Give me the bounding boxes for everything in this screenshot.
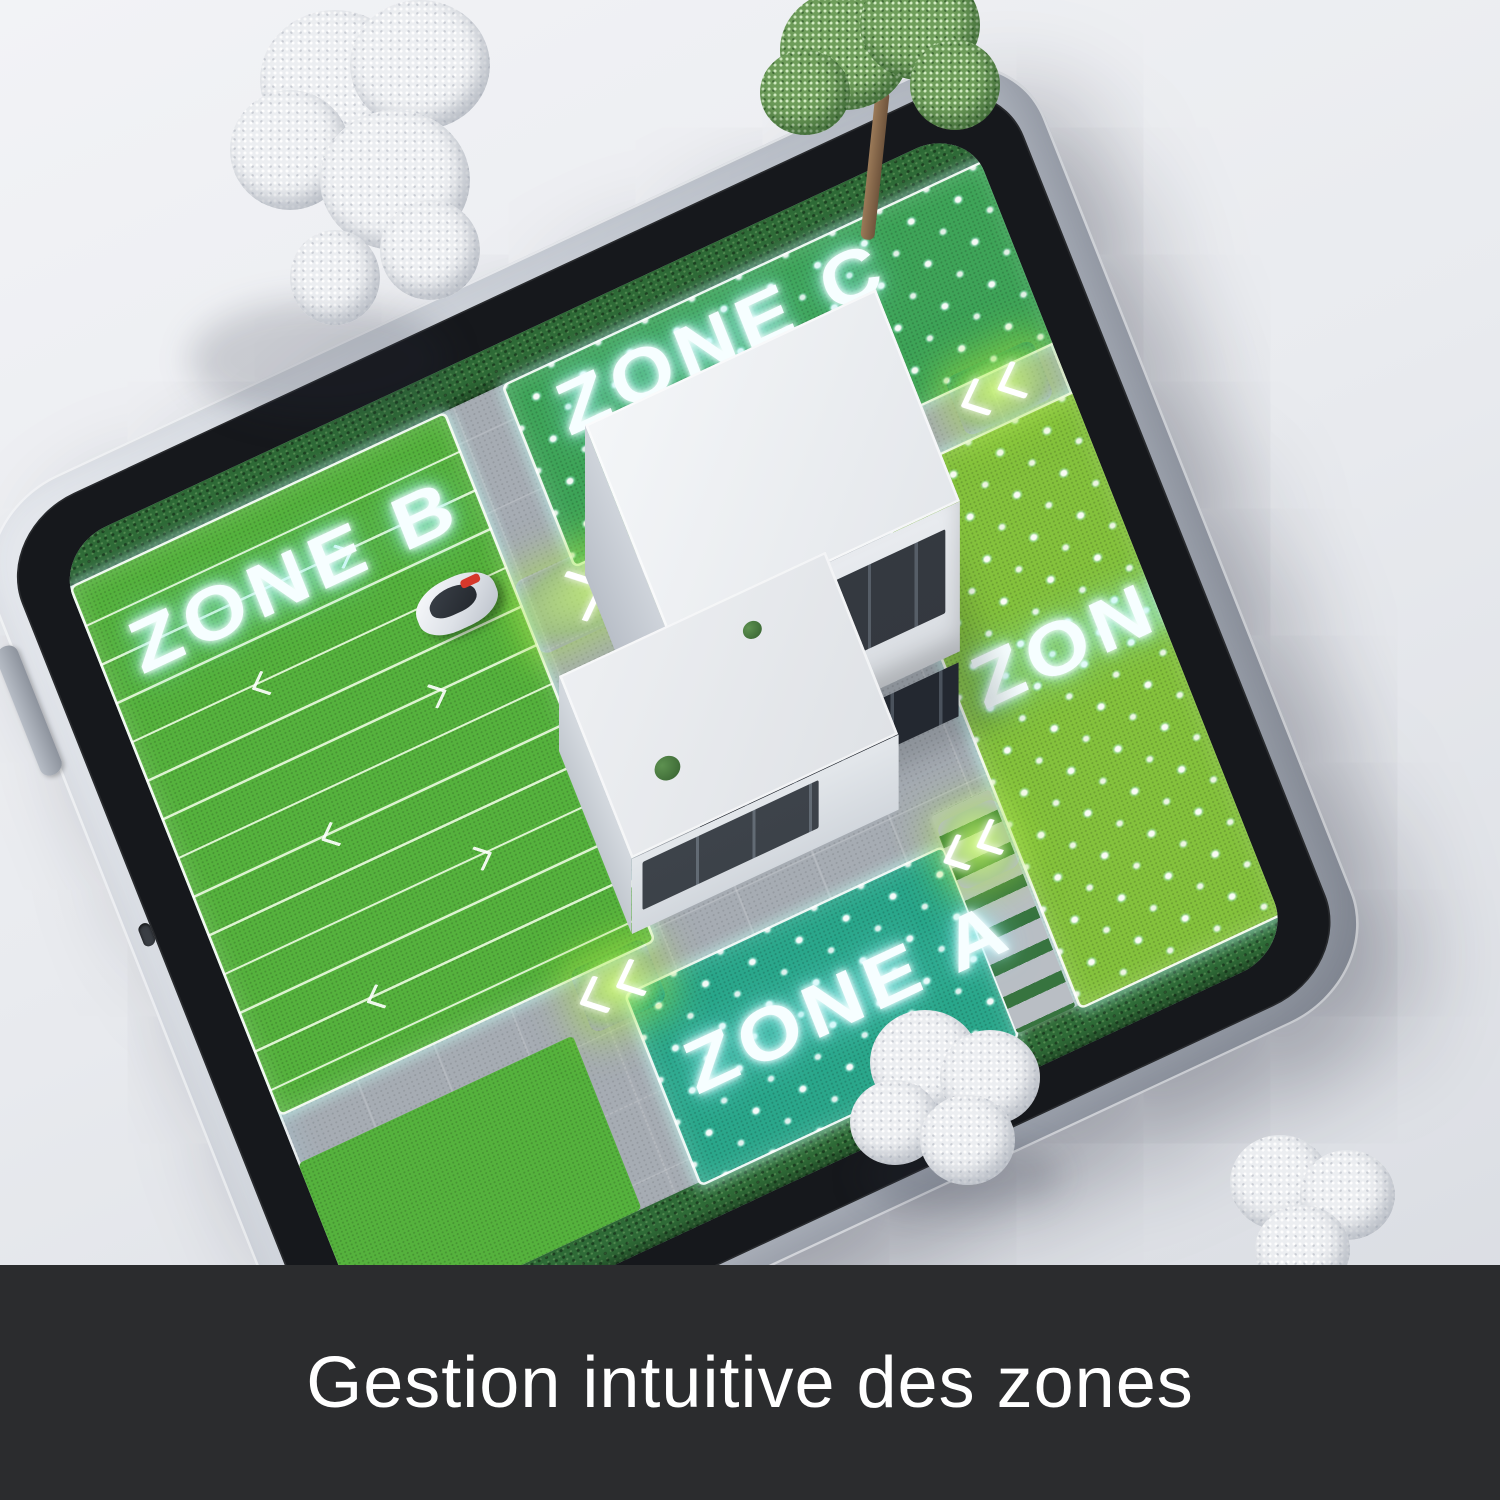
chevron-icon — [960, 377, 1002, 415]
caption-bar: Gestion intuitive des zones — [0, 1265, 1500, 1500]
tree-foliage — [760, 50, 850, 135]
tree-foliage — [920, 1095, 1015, 1185]
caption-text: Gestion intuitive des zones — [306, 1342, 1193, 1424]
white-tree-bottom-center — [850, 1000, 1050, 1200]
white-tree-top-left — [230, 0, 510, 440]
mow-direction-arrow-icon — [465, 846, 492, 871]
mow-direction-arrow-icon — [420, 684, 447, 709]
tree-foliage — [350, 0, 490, 130]
smartphone-device: ZONE B ZONE C ZONE D ZONE A — [0, 30, 1387, 1469]
mow-direction-arrow-icon — [321, 822, 348, 847]
green-tree-top — [760, 0, 1000, 270]
chevron-icon — [596, 549, 653, 601]
tree-foliage — [380, 200, 480, 300]
chevron-icon — [579, 975, 621, 1013]
tree-foliage — [290, 230, 380, 325]
chevron-icon — [643, 527, 700, 579]
chevron-icon — [615, 958, 657, 996]
chevron-icon — [549, 570, 606, 622]
chevron-icon — [996, 360, 1038, 398]
tree-trunk — [860, 90, 890, 241]
tree-foliage — [910, 40, 1000, 130]
mow-direction-arrow-icon — [366, 984, 393, 1009]
mow-direction-arrow-icon — [251, 671, 278, 696]
